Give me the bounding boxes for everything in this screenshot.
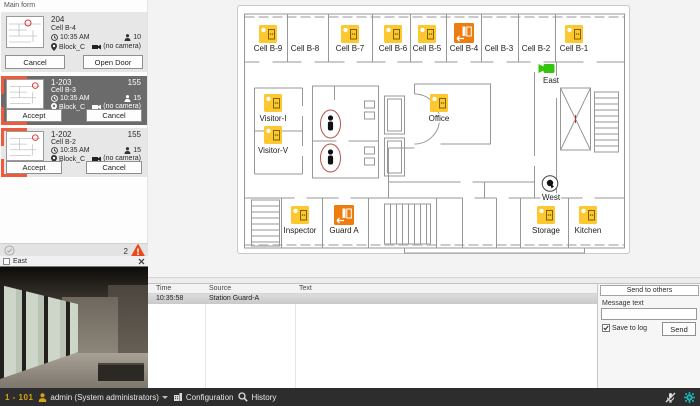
alarm-sidebar: Main form 204 Cell B-4 10:35 AM Block_C … (0, 0, 148, 256)
configuration-label: Configuration (186, 393, 234, 402)
cancel-button[interactable]: Cancel (86, 161, 142, 174)
door-icon-cell-b7[interactable] (341, 25, 359, 45)
save-to-log-checkbox[interactable] (602, 324, 610, 332)
door-open-alarm-icon-guard-a[interactable] (334, 205, 354, 227)
station-id: 1 - 101 (5, 393, 33, 402)
room-label-cell-b2: Cell B-2 (521, 44, 551, 53)
room-label-cell-b1: Cell B-1 (559, 44, 589, 53)
camera-select-checkbox[interactable] (3, 258, 10, 265)
door-icon-kitchen[interactable] (579, 206, 597, 226)
alarm-block: Block_C (59, 104, 85, 111)
message-table-header: Time Source Text (148, 284, 597, 294)
camera-icon (92, 44, 101, 50)
floor-plan[interactable]: Cell B-9 Cell B-8 Cell B-7 Cell B-6 Cell… (237, 5, 630, 254)
video-camera-icon-east[interactable] (539, 63, 556, 76)
column-header-time[interactable]: Time (148, 284, 205, 293)
room-label-kitchen: Kitchen (574, 226, 603, 235)
room-label-guard-a: Guard A (328, 226, 359, 235)
message-time: 10:35:58 (148, 294, 205, 304)
main-window: Main form 204 Cell B-4 10:35 AM Block_C … (0, 0, 700, 406)
alarm-cell-name: Cell B-3 (51, 87, 76, 94)
occupancy-count: 10 (133, 34, 141, 41)
camera-feed[interactable] (0, 267, 148, 388)
room-label-visitor-i: Visitor-I (259, 114, 288, 123)
room-label-cell-b7: Cell B-7 (335, 44, 365, 53)
alarm-card-204[interactable]: 204 Cell B-4 10:35 AM Block_C 10 (no cam… (1, 12, 147, 72)
check-circle-icon[interactable] (4, 245, 15, 256)
door-icon-visitor-i[interactable] (264, 94, 282, 114)
alert-status-strip: 2 (0, 243, 148, 256)
map-area: Cell B-9 Cell B-8 Cell B-7 Cell B-6 Cell… (148, 0, 700, 277)
cancel-button[interactable]: Cancel (5, 55, 65, 69)
alarm-time: 10:35 AM (60, 34, 90, 41)
message-log: Time Source Text 10:35:58 Station Guard-… (148, 283, 597, 388)
camera-status: (no camera) (103, 43, 141, 50)
user-icon (38, 393, 47, 402)
alarm-badge: 155 (128, 130, 141, 139)
door-icon-storage[interactable] (537, 206, 555, 226)
minimap-thumbnail (6, 79, 44, 109)
door-icon-inspector[interactable] (291, 206, 309, 226)
occupancy-count: 15 (133, 147, 141, 154)
message-row[interactable]: 10:35:58 Station Guard-A (148, 294, 597, 304)
room-label-cell-b6: Cell B-6 (378, 44, 408, 53)
person-icon (124, 34, 131, 41)
alarm-cell-name: Cell B-4 (51, 25, 76, 32)
status-bar: 1 - 101 admin (System administrators) Co… (0, 388, 700, 406)
clock-icon (51, 95, 58, 102)
room-label-inspector: Inspector (283, 226, 318, 235)
alarm-cell-name: Cell B-2 (51, 139, 76, 146)
door-open-alarm-icon-cell-b4[interactable] (454, 23, 474, 45)
microphone-muted-icon[interactable] (665, 392, 676, 403)
door-icon-visitor-v[interactable] (264, 126, 282, 146)
window-title: Main form (4, 2, 35, 9)
door-icon-cell-b5[interactable] (418, 25, 436, 45)
alarm-badge: 155 (128, 78, 141, 87)
alarm-block: Block_C (59, 44, 85, 51)
alarm-time: 10:35 AM (60, 147, 90, 154)
send-to-others-button[interactable]: Send to others (600, 285, 699, 296)
accept-button[interactable]: Accept (6, 161, 62, 174)
column-header-text[interactable]: Text (295, 284, 597, 293)
clock-icon (51, 147, 58, 154)
room-label-cell-b9: Cell B-9 (253, 44, 283, 53)
door-icon-cell-b6[interactable] (384, 25, 402, 45)
alarm-card-1-202[interactable]: 1-202 155 Cell B-2 10:35 AM Block_C 15 (… (1, 128, 147, 177)
door-icon-office[interactable] (430, 94, 448, 114)
minimap-thumbnail (6, 16, 44, 48)
alarm-block: Block_C (59, 156, 85, 163)
alert-count: 2 (124, 247, 128, 256)
open-door-button[interactable]: Open Door (83, 55, 143, 69)
message-text (295, 294, 597, 304)
room-label-storage: Storage (531, 226, 561, 235)
location-pin-icon (51, 43, 57, 51)
minimap-thumbnail (6, 131, 44, 161)
search-icon (238, 392, 248, 402)
person-icon (124, 95, 131, 102)
column-header-source[interactable]: Source (205, 284, 295, 293)
room-label-cell-b5: Cell B-5 (412, 44, 442, 53)
room-label-office: Office (428, 114, 451, 123)
history-menu[interactable]: History (238, 392, 276, 402)
door-icon-cell-b1[interactable] (565, 25, 583, 45)
alarm-id: 1-202 (51, 130, 71, 139)
close-icon[interactable] (138, 258, 145, 265)
alarm-id: 1-203 (51, 78, 71, 87)
history-label: History (251, 393, 276, 402)
occupancy-count: 15 (133, 95, 141, 102)
send-panel: Send to others Message text Save to log … (597, 283, 700, 388)
camera-panel-titlebar: East (0, 256, 148, 267)
alarm-time: 10:35 AM (60, 95, 90, 102)
save-to-log-label: Save to log (612, 325, 647, 332)
user-menu[interactable]: admin (System administrators) (38, 393, 167, 402)
chevron-down-icon (162, 396, 168, 399)
room-label-cell-b3: Cell B-3 (484, 44, 514, 53)
room-label-cell-b8: Cell B-8 (290, 44, 320, 53)
accept-button[interactable]: Accept (6, 109, 62, 122)
alarm-id: 204 (51, 15, 64, 24)
cancel-button[interactable]: Cancel (86, 109, 142, 122)
camera-label-east: East (542, 76, 560, 85)
clock-icon (51, 34, 58, 41)
alarm-card-1-203[interactable]: 1-203 155 Cell B-3 10:35 AM Block_C 15 (… (1, 76, 147, 125)
camera-panel-title: East (13, 258, 27, 265)
configuration-menu[interactable]: Configuration (173, 392, 234, 402)
camera-label-west: West (541, 193, 561, 202)
message-source: Station Guard-A (205, 294, 295, 304)
person-icon (124, 147, 131, 154)
configuration-icon (173, 392, 183, 402)
dome-camera-icon-west[interactable] (542, 175, 559, 194)
message-input[interactable] (601, 308, 697, 320)
door-icon-cell-b9[interactable] (259, 25, 277, 45)
user-name: admin (System administrators) (50, 393, 158, 402)
send-button[interactable]: Send (662, 322, 696, 336)
room-label-visitor-v: Visitor-V (257, 146, 289, 155)
gear-icon[interactable] (684, 392, 695, 403)
room-label-cell-b4: Cell B-4 (449, 44, 479, 53)
message-text-label: Message text (602, 300, 644, 307)
